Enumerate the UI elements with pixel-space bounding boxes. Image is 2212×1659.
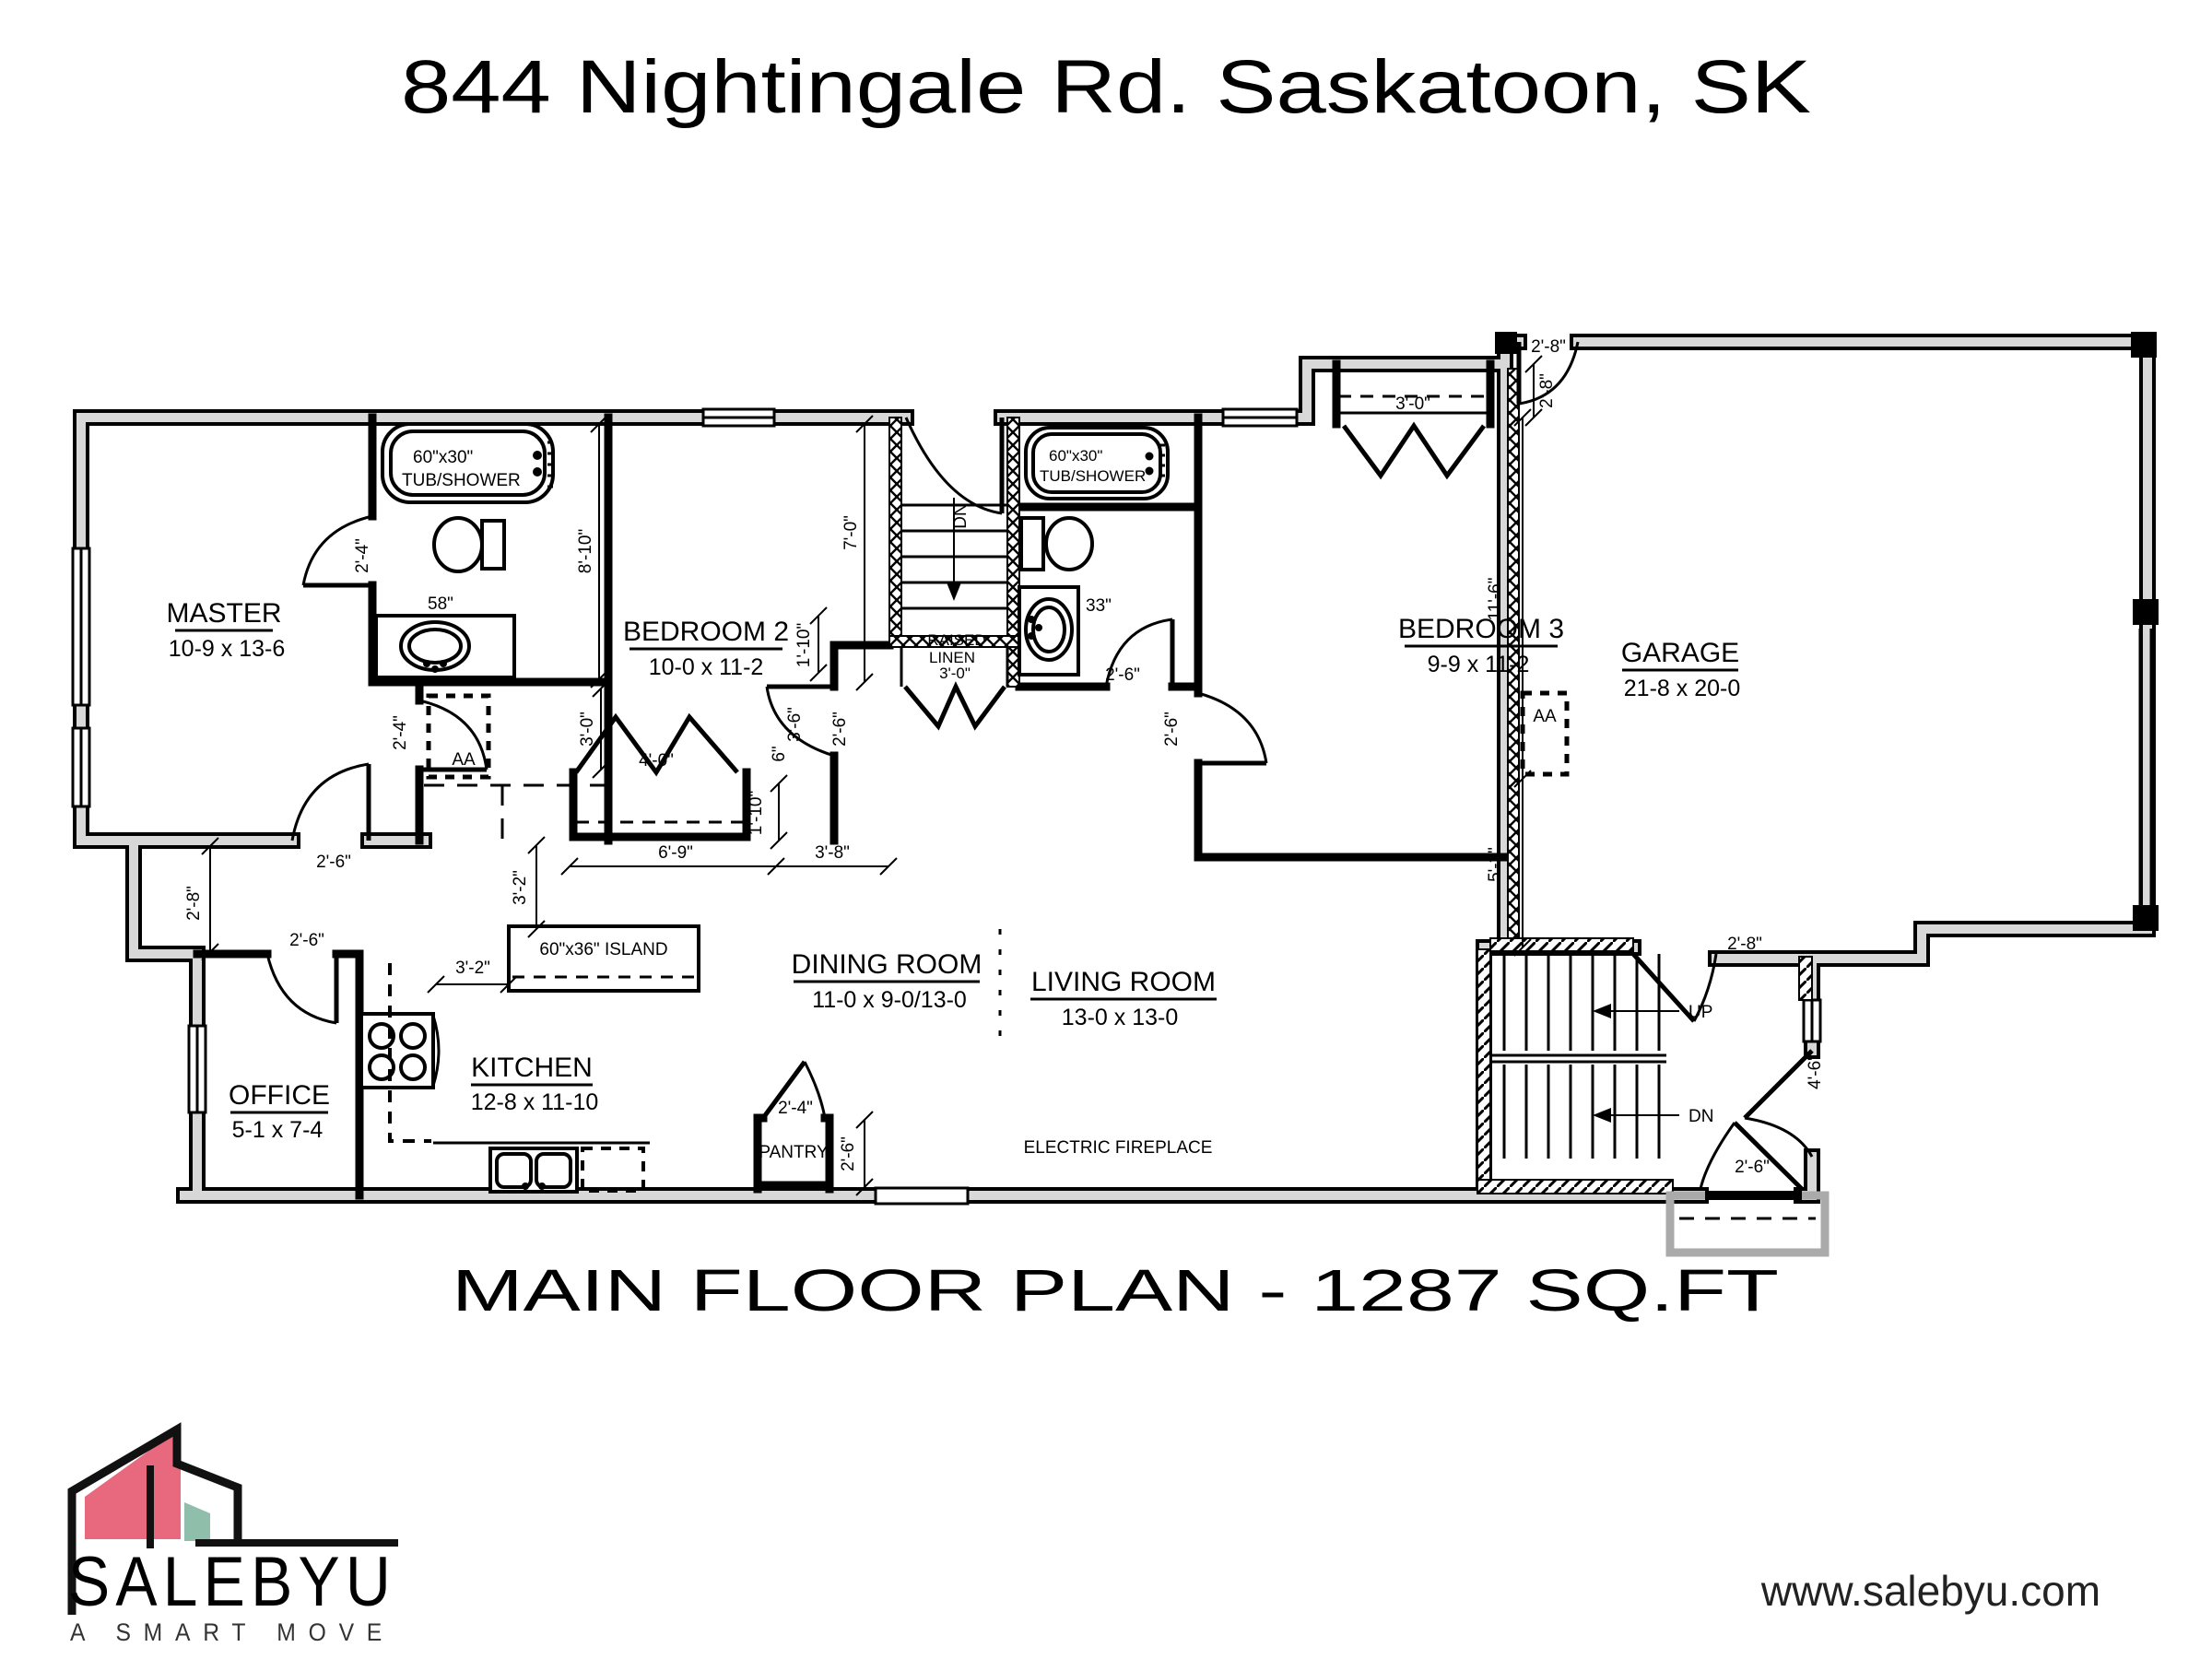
hatched-wall xyxy=(1490,938,1633,951)
room-living: LIVING ROOM xyxy=(1031,967,1216,997)
main-tub-label: TUB/SHOWER xyxy=(1040,467,1146,485)
dim-mainbath-door: 2'-6" xyxy=(1105,665,1140,685)
bedroom3-door xyxy=(1198,693,1266,763)
master-tub-size: 60"x30" xyxy=(413,448,473,467)
dim-kitchen-aisle2: 3'-2" xyxy=(511,870,530,905)
room-bedroom3-dims: 9-9 x 11-2 xyxy=(1428,652,1530,677)
room-kitchen-dims: 12-8 x 11-10 xyxy=(471,1089,599,1115)
stairs-dn-label: DN xyxy=(1688,1107,1713,1126)
hatched-wall xyxy=(1799,957,1812,1000)
window xyxy=(73,728,89,806)
dim-bed3-closet-side: 2'-8" xyxy=(1537,373,1557,408)
master-vanity xyxy=(376,616,514,677)
dim-pantry-depth: 2'-6" xyxy=(839,1136,858,1171)
pillar xyxy=(1495,332,1517,354)
dim-bed3-closet-width: 3'-0" xyxy=(1395,394,1430,414)
attic-access-box xyxy=(1523,693,1567,774)
pillar xyxy=(2133,905,2159,931)
master-door xyxy=(292,764,369,841)
stove xyxy=(361,1014,439,1088)
dim-garage-side-a: 11'-6" xyxy=(1486,578,1505,621)
plan-title: MAIN FLOOR PLAN - 1287 SQ.FT xyxy=(452,1257,1779,1324)
linen-line1: RAISED xyxy=(927,631,985,649)
hatched-wall xyxy=(1477,1180,1673,1194)
dim-bed2-door: 2'-6" xyxy=(830,712,850,747)
fireplace-label: ELECTRIC FIREPLACE xyxy=(1024,1138,1213,1158)
room-office: OFFICE xyxy=(229,1080,330,1111)
floor-plan-canvas: 844 Nightingale Rd. Saskatoon, SK xyxy=(0,0,2212,1659)
dim-garage-entry-door: 2'-8" xyxy=(1727,935,1762,954)
room-pantry: PANTRY xyxy=(759,1143,829,1162)
main-tub-size: 60"x30" xyxy=(1049,447,1102,465)
dim-garage-man-door: 2'-8" xyxy=(1531,337,1566,357)
window xyxy=(189,1026,206,1112)
room-master: MASTER xyxy=(166,598,281,629)
dim-closet-door: 2'-4" xyxy=(391,715,410,750)
down-arrow-icon xyxy=(947,582,961,601)
dim-kitchen-aisle: 3'-2" xyxy=(455,959,490,978)
dim-closet-run2: 3'-8" xyxy=(815,843,850,863)
attic-access-label: AA xyxy=(452,750,476,770)
room-kitchen: KITCHEN xyxy=(471,1053,593,1083)
room-dining: DINING ROOM xyxy=(792,949,982,980)
logo-teal-shape xyxy=(184,1502,210,1541)
stairs-dn-top-label: DN xyxy=(951,503,971,528)
window xyxy=(1804,1000,1820,1041)
room-master-dims: 10-9 x 13-6 xyxy=(169,636,285,662)
dim-bed2-closet-width: 4'-0" xyxy=(639,751,674,771)
dim-garage-side-b: 5'-2" xyxy=(1486,847,1505,882)
window xyxy=(703,409,774,426)
dim-pantry-door: 2'-4" xyxy=(778,1099,813,1118)
dim-hall-c: 3'-6" xyxy=(785,707,805,742)
dim-ensuite-door: 2'-4" xyxy=(353,538,372,573)
hatched-wall xyxy=(1477,949,1490,1189)
left-arrow-icon xyxy=(1593,1004,1611,1018)
office-door xyxy=(267,954,336,1023)
dim-stair-hall: 7'-0" xyxy=(841,515,861,550)
dim-office-door: 2'-6" xyxy=(289,931,324,950)
kitchen-sink xyxy=(490,1148,577,1192)
room-bedroom2: BEDROOM 2 xyxy=(623,617,789,647)
room-bedroom2-dims: 10-0 x 11-2 xyxy=(649,654,764,680)
hatched-wall xyxy=(889,418,901,647)
room-living-dims: 13-0 x 13-0 xyxy=(1062,1005,1178,1030)
fireplace-niche xyxy=(876,1188,968,1204)
dim-ensuite-width: 8'-10" xyxy=(576,529,595,573)
master-vanity-size: 58" xyxy=(428,594,453,614)
dim-bed3-door: 2'-6" xyxy=(1162,712,1182,747)
entry-stairs: UP DN xyxy=(1491,954,1713,1159)
dim-hall-a: 1'-10" xyxy=(794,623,814,667)
dishwasher xyxy=(582,1148,643,1191)
dim-bed2-closet-depth: 3'-0" xyxy=(578,712,597,747)
dim-closet-run: 6'-9" xyxy=(658,843,693,863)
logo-brand: SALEBYU xyxy=(68,1543,396,1621)
pillar xyxy=(2133,599,2159,625)
main-vanity-size: 33" xyxy=(1086,596,1112,616)
room-garage: GARAGE xyxy=(1621,638,1739,668)
island-label: 60"x36" ISLAND xyxy=(539,940,667,959)
bifold-door xyxy=(905,687,1005,726)
master-tub-label: TUB/SHOWER xyxy=(402,471,521,490)
brand-logo: SALEBYU A SMART MOVE xyxy=(68,1430,398,1646)
dim-entry-side: 4'-6" xyxy=(1806,1054,1825,1089)
pillar xyxy=(2131,332,2157,358)
attic-access-label: AA xyxy=(1533,707,1557,726)
bifold-door xyxy=(1344,426,1484,476)
room-office-dims: 5-1 x 7-4 xyxy=(232,1117,324,1143)
logo-tagline: A SMART MOVE xyxy=(70,1618,394,1646)
logo-pink-shape xyxy=(85,1433,181,1539)
website-link[interactable]: www.salebyu.com xyxy=(1760,1567,2100,1615)
room-garage-dims: 21-8 x 20-0 xyxy=(1624,676,1740,701)
room-bedroom3: BEDROOM 3 xyxy=(1398,614,1564,644)
dim-hall-d: 6" xyxy=(770,746,789,761)
window xyxy=(1223,409,1297,426)
linen-width: 3'-0" xyxy=(939,665,971,682)
floor-plan-page: 844 Nightingale Rd. Saskatoon, SK xyxy=(0,0,2212,1659)
window xyxy=(73,548,89,705)
main-vanity xyxy=(1019,587,1078,675)
page-title: 844 Nightingale Rd. Saskatoon, SK xyxy=(401,45,1811,129)
left-arrow-icon xyxy=(1593,1108,1611,1123)
master-toilet xyxy=(434,518,504,571)
basement-stairs-top: DN xyxy=(901,498,1007,726)
dim-hall-b: 1'-10" xyxy=(747,791,766,835)
dim-master-door: 2'-6" xyxy=(316,853,351,872)
dim-hall-jog: 2'-8" xyxy=(184,886,204,921)
dim-entry-door: 2'-6" xyxy=(1735,1158,1770,1177)
room-dining-dims: 11-0 x 9-0/13-0 xyxy=(812,987,967,1013)
main-toilet xyxy=(1021,518,1092,570)
